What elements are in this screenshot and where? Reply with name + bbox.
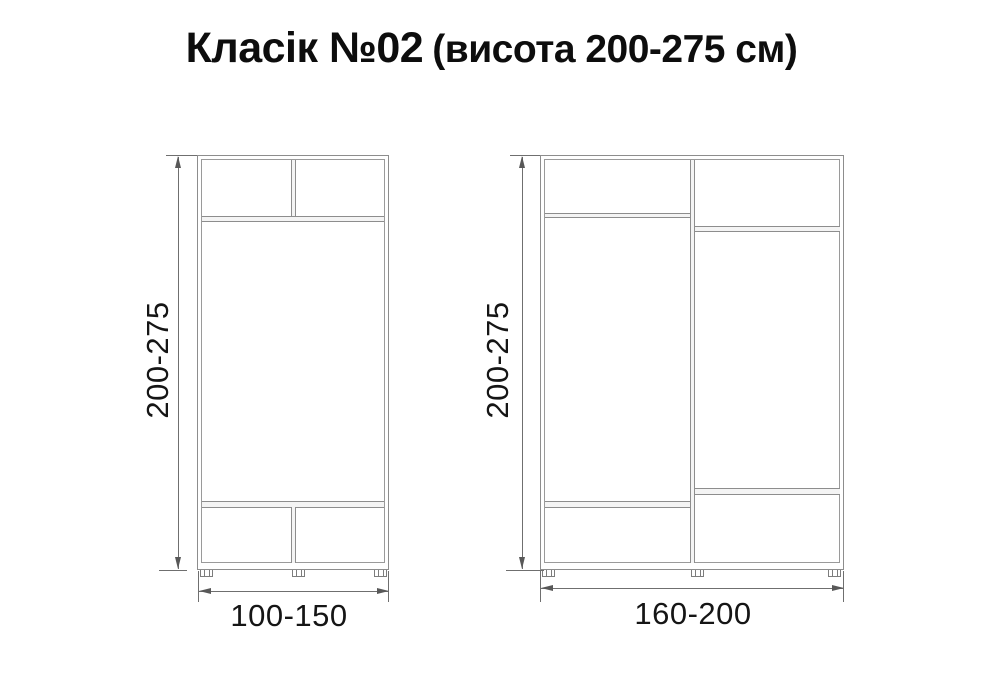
small-wardrobe-top-divider [291,160,296,217]
small-height-arrow-top-icon [175,156,181,168]
small-wardrobe-width-label: 100-150 [209,599,369,633]
small-wardrobe-top-shelf [202,216,384,222]
small-width-arrow-right-icon [377,588,389,594]
large-wardrobe-right-bottom-shelf [695,488,840,495]
large-width-arrow-right-icon [832,585,844,591]
large-height-arrow-top-icon [519,156,525,168]
large-width-arrow-left-icon [541,585,553,591]
large-height-extension-top [510,155,540,156]
small-height-arrow-bottom-icon [175,557,181,569]
small-wardrobe-height-label: 200-275 [141,295,175,425]
page-title: Класік №02(висота 200-275 см) [0,24,983,73]
small-wardrobe-foot-right [374,570,387,577]
large-wardrobe-middle-divider [690,160,695,563]
large-wardrobe-width-label: 160-200 [613,597,773,631]
large-wardrobe-left-bottom-shelf [545,501,690,508]
large-wardrobe-foot-center [691,570,704,577]
small-height-extension-top [166,155,197,156]
small-width-arrow-left-icon [199,588,211,594]
small-wardrobe-foot-left [200,570,213,577]
small-width-dimension-line [199,591,389,592]
large-wardrobe-foot-right [828,570,841,577]
small-width-extension-left [198,571,199,602]
large-height-arrow-bottom-icon [519,557,525,569]
small-width-extension-right [388,571,389,602]
small-wardrobe-foot-center [292,570,305,577]
small-height-dimension-line [178,157,179,569]
large-wardrobe-left-top-shelf [545,213,690,218]
diagram-canvas: Класік №02(висота 200-275 см) 200-275 10… [0,0,983,700]
small-wardrobe-bottom-divider [291,507,296,563]
large-height-extension-bottom [506,570,544,571]
large-wardrobe-height-label: 200-275 [481,295,515,425]
large-wardrobe-foot-left [542,570,555,577]
large-wardrobe-right-top-shelf [695,226,840,232]
title-subtitle: (висота 200-275 см) [432,28,797,71]
title-main: Класік №02 [186,24,424,72]
large-height-dimension-line [522,157,523,569]
large-width-dimension-line [541,588,844,589]
small-height-extension-bottom [159,570,187,571]
